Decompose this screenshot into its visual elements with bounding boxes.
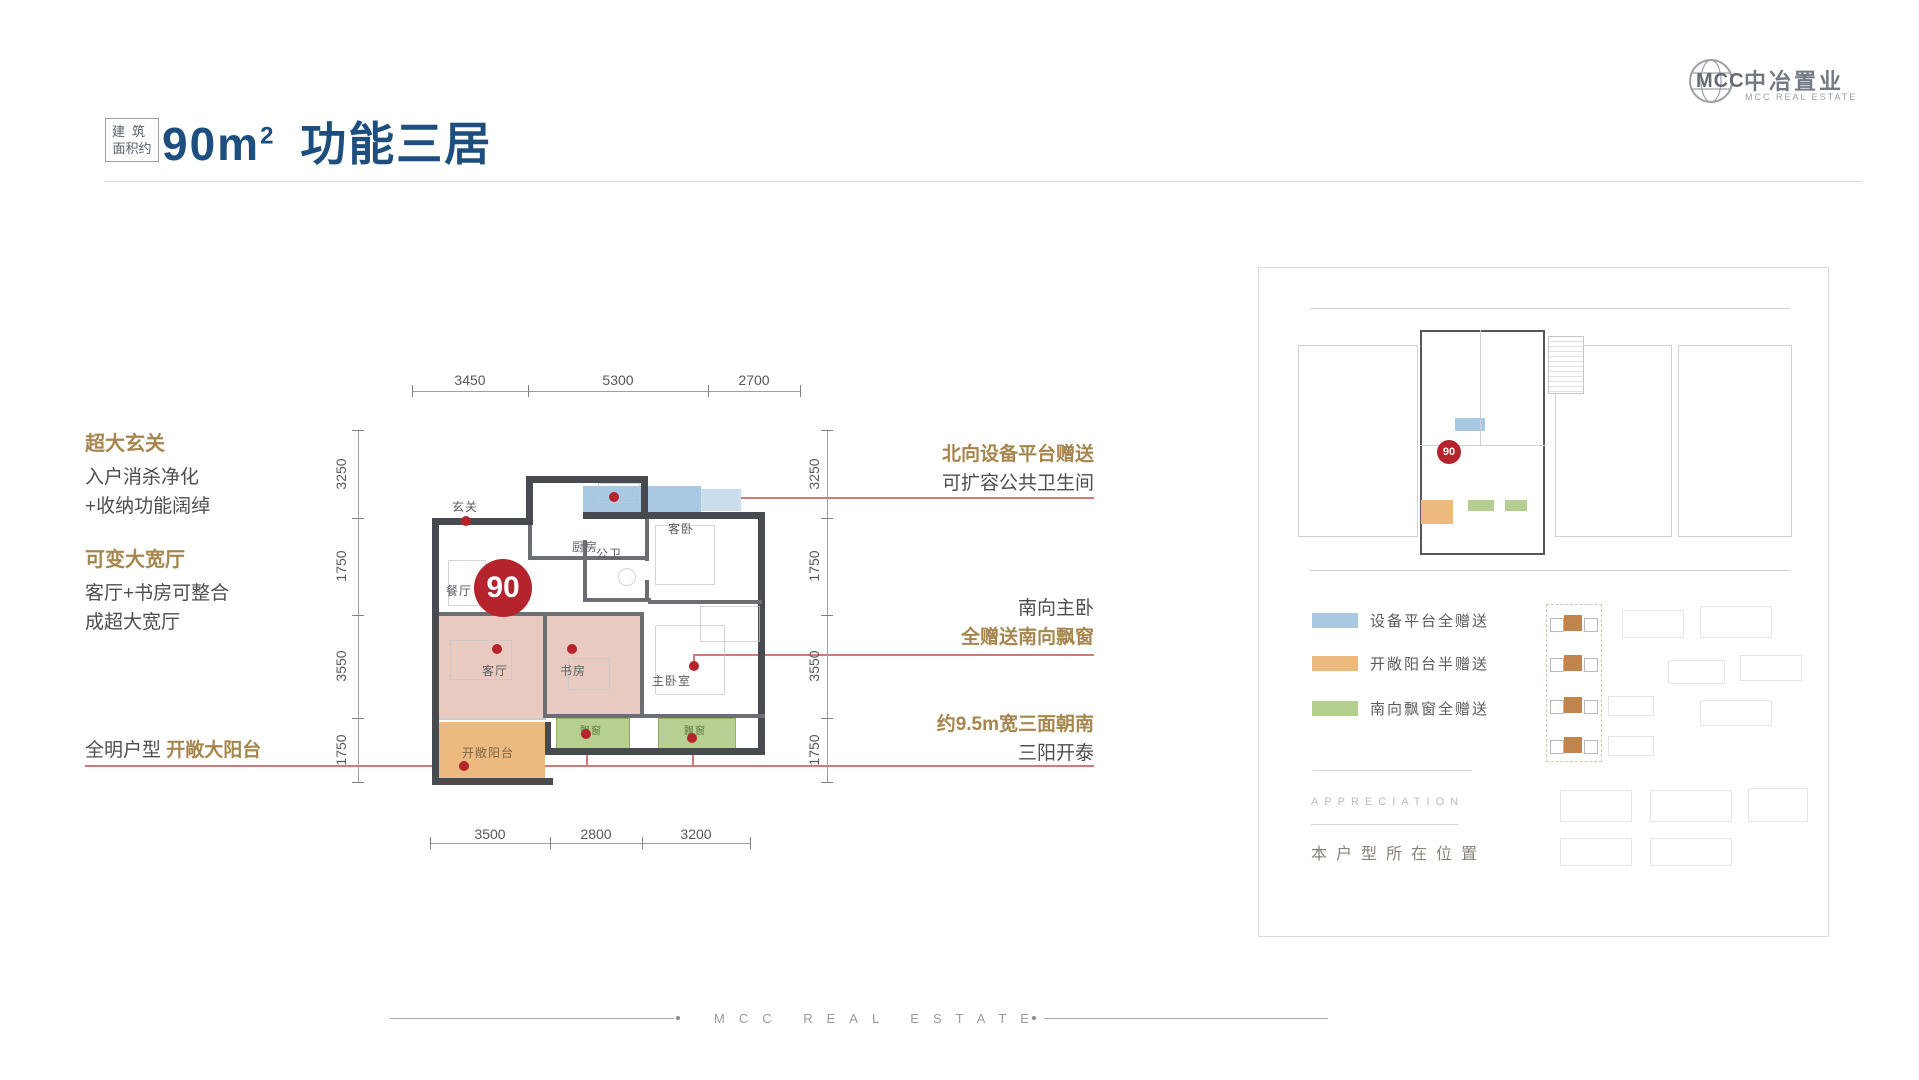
interior-wall <box>543 614 547 718</box>
dim-left-3: 3550 <box>334 646 348 686</box>
wall <box>545 748 765 755</box>
legend-item-balcony: 开敞阳台半赠送 <box>1312 653 1489 674</box>
annotation-entry: 超大玄关 入户消杀净化 +收纳功能阔绰 <box>85 430 210 521</box>
brand-logo: MCC 中冶置业 MCC REAL ESTATE <box>1688 56 1868 114</box>
dim-tick <box>352 518 364 519</box>
equipment-platform-area-light <box>701 489 741 511</box>
footer-dot-right <box>1032 1016 1036 1020</box>
bath-fixture <box>618 568 636 586</box>
annotation-entry-line1: 入户消杀净化 <box>85 463 210 492</box>
dim-right-3: 3550 <box>807 646 821 686</box>
annotation-balcony-normal: 全明户型 <box>85 740 166 761</box>
interior-wall <box>583 598 651 602</box>
feature-dot-master <box>689 661 699 671</box>
dim-top-3: 2700 <box>724 372 784 388</box>
annotation-south-line2: 三阳开泰 <box>937 739 1094 768</box>
annotation-entry-line2: +收纳功能阔绰 <box>85 492 210 521</box>
interior-wall <box>528 525 532 560</box>
mini-unit-badge: 90 <box>1437 440 1461 464</box>
dim-top-2: 5300 <box>588 372 648 388</box>
dim-tick <box>821 782 833 783</box>
legend-swatch-green <box>1312 701 1358 716</box>
building-core <box>1564 615 1582 631</box>
annotation-south-line1: 约9.5m宽三面朝南 <box>937 710 1094 739</box>
annotation-master: 南向主卧 全赠送南向飘窗 <box>961 594 1094 652</box>
building-wing <box>1550 700 1564 714</box>
dim-line-left <box>358 430 359 782</box>
dim-left-1: 3250 <box>334 454 348 494</box>
title-suffix: 功能三居 <box>300 118 492 170</box>
annotation-platform: 北向设备平台赠送 可扩容公共卫生间 <box>942 440 1094 498</box>
site-building-faint <box>1650 838 1732 866</box>
plate-dim-line <box>1310 570 1790 571</box>
dim-tick <box>821 430 833 431</box>
mini-bay2 <box>1505 500 1527 511</box>
building-wing <box>1584 740 1598 754</box>
room-label-guest: 客卧 <box>668 520 694 537</box>
building-wing <box>1550 658 1564 672</box>
plate-block-right <box>1678 345 1792 537</box>
unit-number-badge: 90 <box>474 559 532 617</box>
site-building <box>1550 734 1596 756</box>
title-badge: 建筑 面积约 <box>105 118 159 162</box>
dim-tick <box>821 718 833 719</box>
site-building-faint <box>1560 790 1632 822</box>
legend-item-bay: 南向飘窗全赠送 <box>1312 698 1489 719</box>
wall <box>432 518 532 525</box>
feature-dot-study <box>567 644 577 654</box>
annotation-living-line1: 客厅+书房可整合 <box>85 579 229 608</box>
logo-mcc-text: MCC <box>1696 70 1745 93</box>
dim-bottom-3: 3200 <box>666 826 726 842</box>
site-building <box>1550 612 1596 634</box>
dim-right-4: 1750 <box>807 730 821 770</box>
panel-divider-1 <box>1313 770 1472 771</box>
annotation-living-heading: 可变大宽厅 <box>85 546 229 575</box>
interior-wall <box>645 519 649 561</box>
mini-wall <box>1480 330 1481 445</box>
site-building-faint <box>1668 660 1725 684</box>
wall <box>526 476 533 525</box>
site-building-faint <box>1560 838 1632 866</box>
window-line <box>439 718 546 720</box>
annotation-living: 可变大宽厅 客厅+书房可整合 成超大宽厅 <box>85 546 229 637</box>
title-divider <box>105 181 1862 182</box>
dim-tick <box>430 837 431 849</box>
wall <box>583 512 765 519</box>
annotation-platform-line1: 北向设备平台赠送 <box>942 440 1094 469</box>
dim-tick <box>642 837 643 849</box>
footer-text: MCC REAL ESTATE <box>714 1011 1043 1026</box>
site-building-faint <box>1700 606 1772 638</box>
dim-tick <box>352 430 364 431</box>
annotation-south: 约9.5m宽三面朝南 三阳开泰 <box>937 710 1094 768</box>
dim-tick <box>750 837 751 849</box>
dim-line-bottom <box>430 843 750 844</box>
footer-dot-left <box>676 1016 680 1020</box>
footer-line-left <box>390 1018 674 1019</box>
building-core <box>1564 697 1582 713</box>
leader-line-south <box>85 765 1094 767</box>
wall <box>432 778 553 785</box>
dim-left-2: 1750 <box>334 546 348 586</box>
room-label-study: 书房 <box>560 662 586 679</box>
building-wing <box>1584 658 1598 672</box>
dim-tick <box>528 385 529 397</box>
page-title: 90m2 功能三居 <box>162 108 492 174</box>
feature-dot-entry <box>461 516 471 526</box>
annotation-master-line2: 全赠送南向飘窗 <box>961 623 1094 652</box>
interior-wall <box>547 714 644 718</box>
building-core <box>1564 737 1582 753</box>
interior-wall <box>648 600 762 604</box>
badge-line2: 面积约 <box>111 140 153 157</box>
annotation-balcony-highlight: 开敞大阳台 <box>166 740 261 761</box>
mini-bay1 <box>1468 500 1494 511</box>
interior-wall <box>645 580 649 602</box>
site-building-faint <box>1650 790 1732 822</box>
site-building-faint <box>1740 655 1802 681</box>
site-building <box>1550 652 1596 674</box>
feature-dot-bay2 <box>687 733 697 743</box>
dim-left-4: 1750 <box>334 730 348 770</box>
annotation-living-line2: 成超大宽厅 <box>85 608 229 637</box>
dim-tick <box>412 385 413 397</box>
watermark-text: APPRECIATION <box>1311 796 1464 808</box>
building-wing <box>1550 740 1564 754</box>
site-building-faint <box>1622 610 1684 638</box>
dim-bottom-2: 2800 <box>566 826 626 842</box>
site-building-faint <box>1700 700 1772 726</box>
logo-name-en: MCC REAL ESTATE <box>1745 92 1857 102</box>
site-building <box>1550 694 1596 716</box>
wall <box>545 722 551 755</box>
interior-wall <box>439 612 644 616</box>
building-wing <box>1584 700 1598 714</box>
building-core <box>1564 655 1582 671</box>
interior-wall <box>644 714 765 718</box>
legend-label-balcony: 开敞阳台半赠送 <box>1370 653 1489 674</box>
room-label-kitchen: 厨房 <box>572 538 598 555</box>
dim-tick <box>708 385 709 397</box>
dim-line-right <box>827 430 828 782</box>
title-area: 90m <box>162 118 260 170</box>
building-wing <box>1550 618 1564 632</box>
dim-bottom-1: 3500 <box>460 826 520 842</box>
location-label: 本户型所在位置 <box>1311 840 1486 864</box>
room-label-master: 主卧室 <box>652 672 691 689</box>
room-label-entry: 玄关 <box>452 498 478 515</box>
annotation-platform-line2: 可扩容公共卫生间 <box>942 469 1094 498</box>
room-label-living: 客厅 <box>482 662 508 679</box>
slide-page: MCC 中冶置业 MCC REAL ESTATE 建筑 面积约 90m2 功能三… <box>0 0 1919 1080</box>
legend-swatch-blue <box>1312 613 1358 628</box>
interior-wall <box>640 612 644 718</box>
dim-top-1: 3450 <box>440 372 500 388</box>
annotation-master-line1: 南向主卧 <box>961 594 1094 623</box>
dim-line-top <box>412 391 800 392</box>
dim-tick <box>550 837 551 849</box>
mini-balcony <box>1421 500 1453 524</box>
footer-line-right <box>1044 1018 1328 1019</box>
panel-divider-2 <box>1311 824 1458 825</box>
legend-item-platform: 设备平台全赠送 <box>1312 610 1489 631</box>
wall <box>526 476 648 483</box>
wardrobe <box>700 606 760 642</box>
building-wing <box>1584 618 1598 632</box>
stairs <box>1548 336 1584 394</box>
room-label-balcony: 开敞阳台 <box>462 744 514 761</box>
annotation-entry-heading: 超大玄关 <box>85 430 210 459</box>
dim-tick <box>800 385 801 397</box>
feature-dot-bay1 <box>581 729 591 739</box>
legend-swatch-orange <box>1312 656 1358 671</box>
title-area-sup: 2 <box>260 123 275 150</box>
site-building-faint <box>1608 696 1654 716</box>
plate-block-left <box>1298 345 1418 537</box>
dim-tick <box>352 782 364 783</box>
dim-right-2: 1750 <box>807 546 821 586</box>
plate-dim-line <box>1310 308 1790 309</box>
dim-tick <box>821 518 833 519</box>
dim-tick <box>352 615 364 616</box>
annotation-balcony: 全明户型 开敞大阳台 <box>85 736 261 765</box>
site-building-faint <box>1608 736 1654 756</box>
leader-line-master <box>693 654 1094 656</box>
dim-tick <box>821 615 833 616</box>
feature-dot-living <box>492 644 502 654</box>
dim-tick <box>352 718 364 719</box>
badge-line1: 建筑 <box>111 123 153 140</box>
site-building-faint <box>1748 788 1808 822</box>
dim-right-1: 3250 <box>807 454 821 494</box>
interior-wall <box>528 556 648 560</box>
room-label-dining: 餐厅 <box>446 582 472 599</box>
feature-dot-platform <box>609 492 619 502</box>
room-label-bath: 公卫 <box>596 545 622 562</box>
wall <box>432 518 439 785</box>
feature-dot-balcony <box>459 761 469 771</box>
legend-label-bay: 南向飘窗全赠送 <box>1370 698 1489 719</box>
legend-label-platform: 设备平台全赠送 <box>1370 610 1489 631</box>
kitchen-counter <box>598 483 640 503</box>
